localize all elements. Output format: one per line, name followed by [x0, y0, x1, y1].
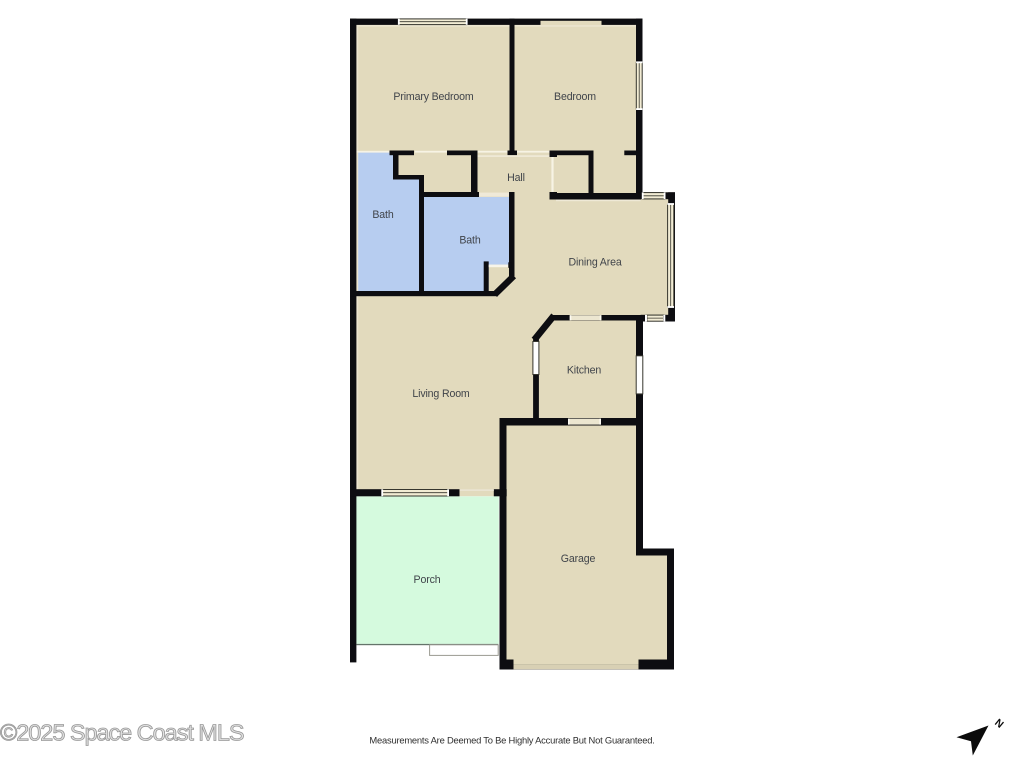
svg-text:Bath: Bath: [459, 235, 480, 247]
svg-text:Living Room: Living Room: [412, 388, 470, 400]
svg-text:Bath: Bath: [372, 209, 393, 221]
svg-text:Kitchen: Kitchen: [567, 365, 602, 377]
svg-text:Dining Area: Dining Area: [568, 257, 621, 269]
svg-text:Hall: Hall: [507, 172, 525, 184]
svg-text:N: N: [992, 717, 1006, 731]
svg-text:Measurements Are Deemed To Be: Measurements Are Deemed To Be Highly Acc…: [369, 734, 654, 745]
svg-text:Garage: Garage: [561, 553, 596, 565]
svg-text:Primary Bedroom: Primary Bedroom: [393, 91, 473, 103]
svg-text:Bedroom: Bedroom: [554, 91, 596, 103]
svg-text:Porch: Porch: [414, 574, 441, 586]
svg-text:©2025 Space Coast MLS: ©2025 Space Coast MLS: [0, 720, 244, 746]
